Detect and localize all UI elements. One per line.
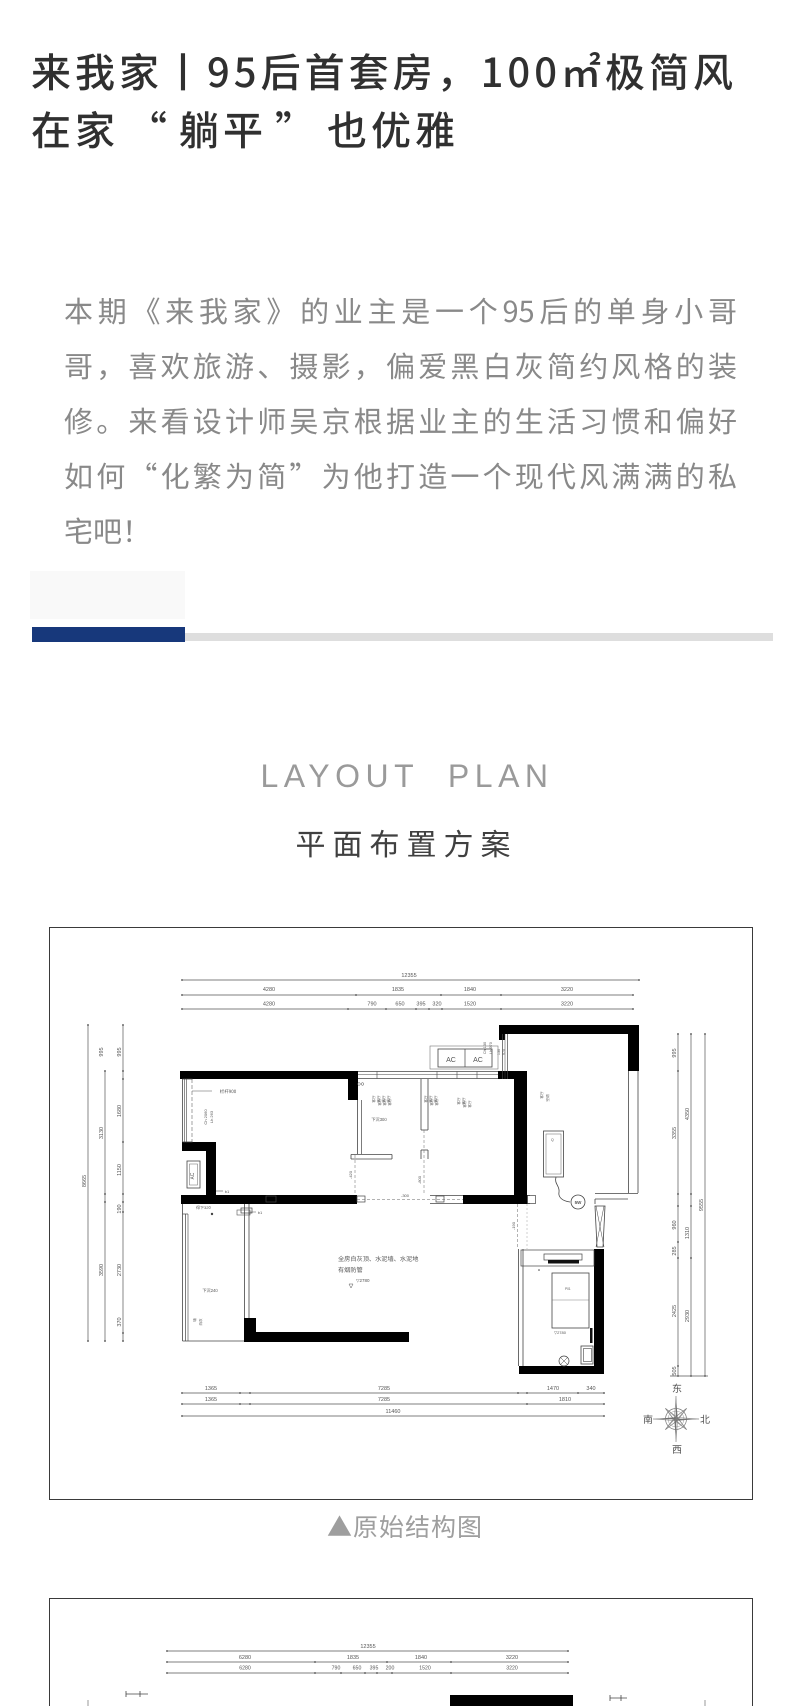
svg-text:空调: 空调 — [545, 1094, 551, 1102]
svg-text:Lh 970: Lh 970 — [489, 1042, 493, 1054]
svg-text:4280: 4280 — [263, 987, 275, 993]
svg-text:-190: -190 — [511, 1221, 516, 1230]
svg-text:Ch 130: Ch 130 — [483, 1042, 487, 1054]
svg-text:995: 995 — [672, 1048, 678, 1057]
svg-text:6280: 6280 — [239, 1666, 251, 1672]
svg-text:370: 370 — [117, 1317, 123, 1326]
svg-text:1470: 1470 — [547, 1386, 559, 1392]
svg-text:客厅: 客厅 — [387, 1098, 393, 1106]
svg-text:AC: AC — [473, 1057, 483, 1064]
svg-text:2930: 2930 — [685, 1310, 691, 1322]
svg-text:12355: 12355 — [360, 1644, 375, 1650]
svg-text:客厅: 客厅 — [467, 1100, 473, 1108]
svg-text:有烟防管: 有烟防管 — [338, 1265, 363, 1274]
svg-text:下沉300: 下沉300 — [371, 1117, 387, 1123]
svg-text:Lh 263: Lh 263 — [209, 1110, 214, 1123]
svg-text:320: 320 — [432, 1002, 441, 1008]
svg-text:b1: b1 — [225, 1189, 230, 1194]
svg-text:1840: 1840 — [415, 1655, 427, 1661]
svg-text:Q: Q — [551, 1138, 554, 1142]
svg-text:全房白灰顶、水泥墙、水泥地: 全房白灰顶、水泥墙、水泥地 — [338, 1254, 418, 1263]
svg-text:4280: 4280 — [263, 1002, 275, 1008]
svg-text:得下320: 得下320 — [196, 1205, 211, 1211]
svg-text:995: 995 — [99, 1047, 105, 1056]
svg-text:AC: AC — [446, 1057, 456, 1064]
svg-text:▽2780: ▽2780 — [356, 1278, 370, 1283]
svg-text:3220: 3220 — [506, 1666, 518, 1672]
svg-text:-420: -420 — [348, 1170, 353, 1179]
svg-text:1810: 1810 — [559, 1397, 571, 1403]
svg-text:▽2780: ▽2780 — [554, 1330, 567, 1335]
svg-text:11460: 11460 — [386, 1409, 401, 1415]
svg-text:970: 970 — [502, 1049, 506, 1055]
svg-text:650: 650 — [395, 1002, 404, 1008]
svg-text:340: 340 — [586, 1386, 595, 1392]
svg-text:1840: 1840 — [464, 987, 476, 993]
svg-text:5W: 5W — [575, 1200, 583, 1205]
svg-text:395: 395 — [416, 1002, 425, 1008]
svg-text:P01: P01 — [565, 1287, 571, 1291]
svg-text:285: 285 — [672, 1246, 678, 1255]
svg-text:790: 790 — [332, 1666, 341, 1672]
svg-text:9555: 9555 — [699, 1199, 705, 1211]
svg-text:西: 西 — [672, 1441, 682, 1456]
svg-text:995: 995 — [117, 1047, 123, 1056]
svg-text:200: 200 — [386, 1666, 395, 1672]
svg-text:客厅: 客厅 — [539, 1091, 545, 1099]
svg-text:8665: 8665 — [82, 1175, 88, 1187]
svg-text:东: 东 — [672, 1380, 682, 1395]
svg-text:130: 130 — [497, 1049, 501, 1055]
svg-text:墙: 墙 — [192, 1318, 198, 1322]
svg-text:960: 960 — [672, 1220, 678, 1229]
svg-text:3220: 3220 — [561, 987, 573, 993]
svg-text:1835: 1835 — [347, 1655, 359, 1661]
svg-text:2730: 2730 — [117, 1264, 123, 1276]
svg-text:北: 北 — [700, 1411, 710, 1426]
svg-text:1680: 1680 — [117, 1105, 123, 1117]
svg-text:南: 南 — [643, 1411, 653, 1426]
svg-text:3590: 3590 — [99, 1264, 105, 1276]
svg-text:4350: 4350 — [685, 1108, 691, 1120]
svg-text:-800: -800 — [417, 1175, 422, 1184]
svg-text:395: 395 — [370, 1666, 379, 1672]
svg-text:3355: 3355 — [672, 1127, 678, 1139]
svg-text:下沉240: 下沉240 — [202, 1288, 218, 1294]
svg-text:505: 505 — [672, 1366, 678, 1375]
svg-text:1520: 1520 — [464, 1002, 476, 1008]
svg-text:Ch 2060: Ch 2060 — [203, 1109, 208, 1125]
svg-text:1365: 1365 — [205, 1397, 217, 1403]
svg-text:栏杆900: 栏杆900 — [220, 1089, 237, 1095]
svg-text:1310: 1310 — [685, 1227, 691, 1239]
svg-text:1365: 1365 — [205, 1386, 217, 1392]
svg-text:3130: 3130 — [99, 1127, 105, 1139]
svg-text:650: 650 — [353, 1666, 362, 1672]
svg-text:7285: 7285 — [378, 1386, 390, 1392]
svg-text:6280: 6280 — [239, 1655, 251, 1661]
svg-text:AC: AC — [189, 1172, 196, 1179]
svg-text:790: 790 — [367, 1002, 376, 1008]
svg-text:白灰: 白灰 — [198, 1318, 204, 1326]
svg-text:1520: 1520 — [419, 1666, 431, 1672]
svg-text:3220: 3220 — [506, 1655, 518, 1661]
svg-text:b1: b1 — [258, 1210, 263, 1215]
svg-text:190: 190 — [117, 1204, 123, 1213]
svg-text:12355: 12355 — [401, 973, 416, 979]
svg-text:2425: 2425 — [672, 1305, 678, 1317]
svg-text:7285: 7285 — [378, 1397, 390, 1403]
svg-text:1150: 1150 — [117, 1164, 123, 1176]
svg-text:1835: 1835 — [392, 987, 404, 993]
svg-text:3220: 3220 — [561, 1002, 573, 1008]
svg-text:-300: -300 — [401, 1193, 410, 1198]
svg-text:客厅: 客厅 — [434, 1098, 440, 1106]
